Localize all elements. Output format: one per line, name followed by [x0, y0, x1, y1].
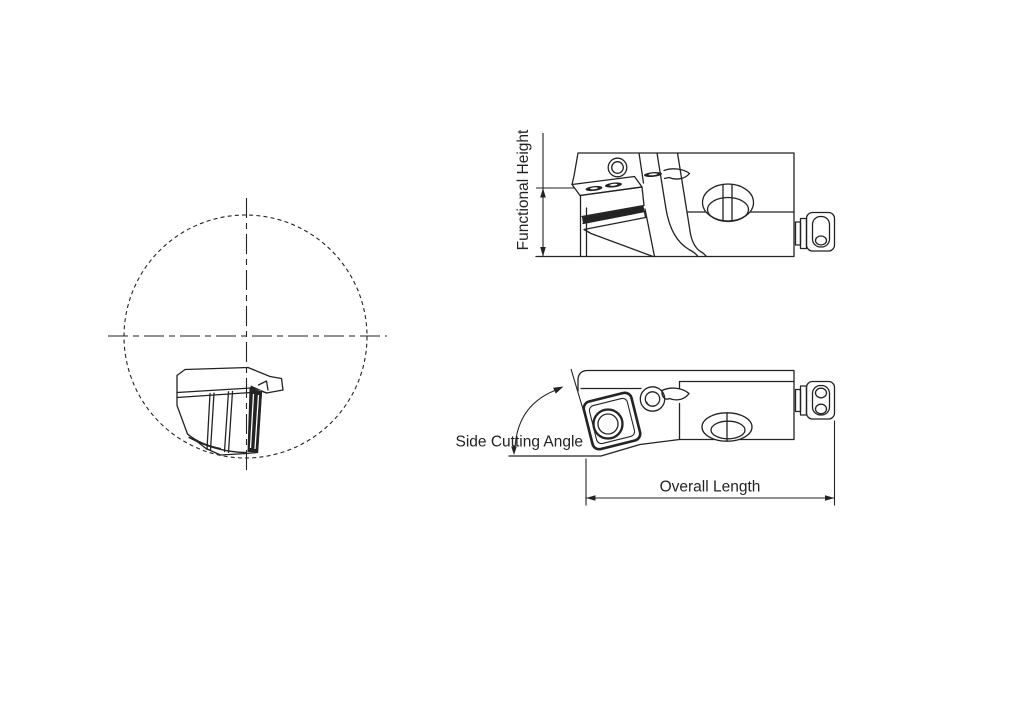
end-view [108, 198, 387, 471]
side-cutting-angle-callout: Side Cutting Angle [456, 369, 595, 455]
functional-height-dimension: Functional Height [515, 129, 574, 257]
top-chip-hook [662, 388, 689, 400]
clamp-screw-head-outer [608, 158, 627, 177]
insert-hole-inner [598, 414, 618, 434]
functional-height-label: Functional Height [515, 129, 532, 250]
top-clamp-screw-outer [640, 387, 664, 411]
angle-arc-arrow [553, 387, 563, 394]
overall-length-label: Overall Length [660, 479, 761, 496]
dimension-arrow-left [586, 495, 596, 500]
side-cutting-angle-label: Side Cutting Angle [456, 434, 584, 451]
side-chip-hook [664, 169, 690, 179]
side-adjust-knob [796, 213, 835, 252]
top-adjust-knob [796, 382, 835, 420]
top-view: Side Cutting Angle Overall Length [456, 369, 835, 506]
clamp-screw-head-inner [612, 162, 624, 174]
dimension-arrow-down [540, 247, 546, 257]
tool-profile-outline [177, 368, 283, 456]
side-view: Functional Height [515, 129, 835, 257]
dimension-arrow-up [540, 188, 546, 198]
dimension-arrow-right [825, 495, 835, 500]
square-insert [582, 391, 641, 450]
engineering-drawing-canvas: Functional Height [0, 0, 1024, 724]
engineering-drawing-page: Functional Height [0, 0, 1024, 724]
